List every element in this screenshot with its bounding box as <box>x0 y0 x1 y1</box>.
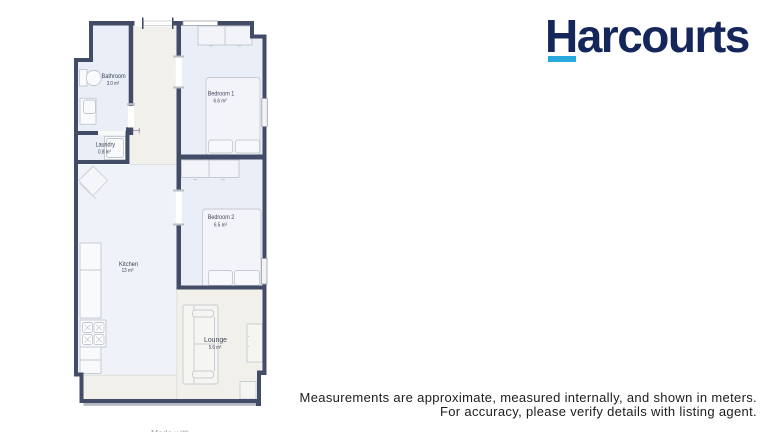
svg-text:6.6 m²: 6.6 m² <box>213 98 226 104</box>
svg-text:6.5 m²: 6.5 m² <box>214 223 227 229</box>
svg-text:Lounge: Lounge <box>204 335 227 344</box>
svg-text:3.0 m²: 3.0 m² <box>107 81 120 87</box>
svg-text:Laundry: Laundry <box>96 142 116 149</box>
svg-text:Made with: Made with <box>151 428 190 432</box>
svg-text:5.6 m²: 5.6 m² <box>209 345 222 351</box>
svg-text:0.8 m²: 0.8 m² <box>98 150 111 156</box>
svg-text:Kitchen: Kitchen <box>119 261 139 268</box>
svg-text:Bedroom 1: Bedroom 1 <box>208 90 235 97</box>
svg-text:Bedroom 2: Bedroom 2 <box>208 214 235 221</box>
svg-text:Bathroom: Bathroom <box>102 73 126 80</box>
svg-text:13 m²: 13 m² <box>122 268 134 274</box>
